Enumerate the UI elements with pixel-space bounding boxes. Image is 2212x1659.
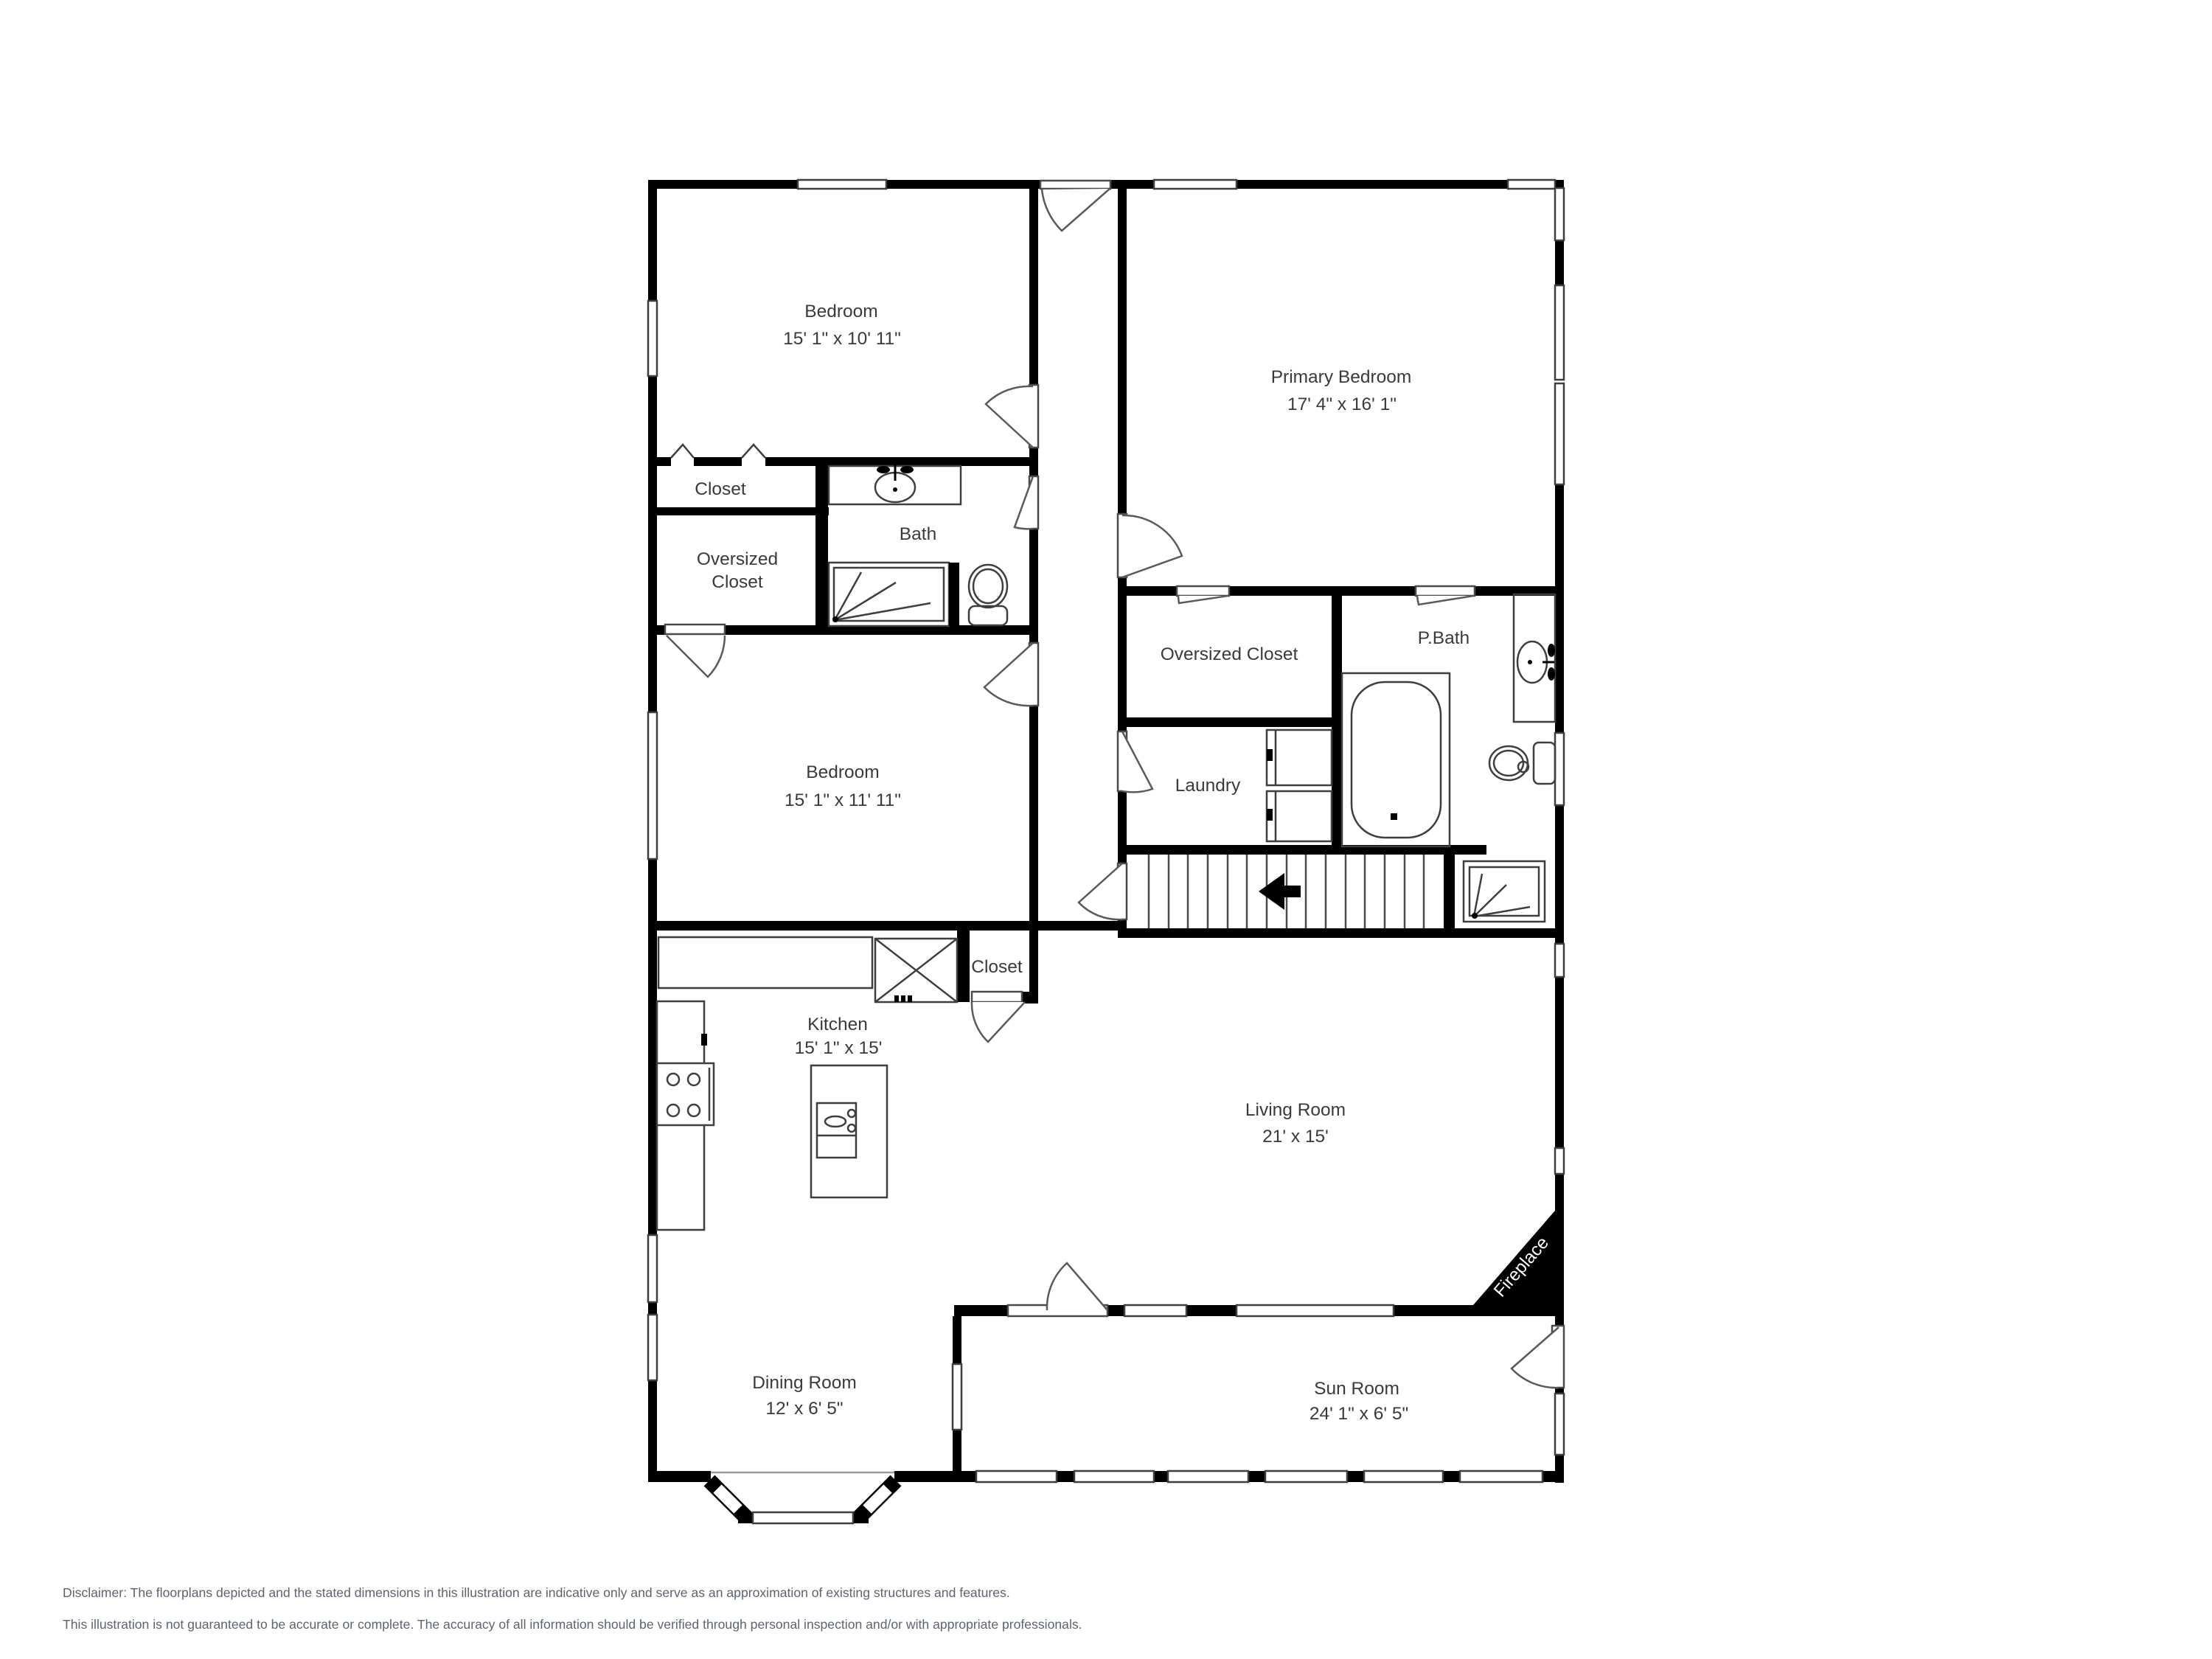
svg-text:P.Bath: P.Bath (1418, 628, 1470, 648)
svg-text:Oversized Closet: Oversized Closet (1161, 644, 1298, 664)
svg-text:This illustration is not guara: This illustration is not guaranteed to b… (63, 1617, 1082, 1632)
svg-text:Disclaimer: The floorplans dep: Disclaimer: The floorplans depicted and … (63, 1585, 1010, 1600)
svg-text:Bath: Bath (900, 524, 936, 544)
svg-text:Primary Bedroom: Primary Bedroom (1271, 367, 1412, 387)
svg-text:12' x 6' 5": 12' x 6' 5" (765, 1399, 843, 1419)
svg-text:15' 1" x 15': 15' 1" x 15' (795, 1038, 883, 1058)
svg-text:Sun Room: Sun Room (1314, 1379, 1399, 1399)
svg-text:Closet: Closet (971, 957, 1023, 977)
svg-text:Bedroom: Bedroom (804, 302, 877, 321)
svg-text:Living Room: Living Room (1245, 1100, 1346, 1120)
svg-text:21' x 15': 21' x 15' (1262, 1127, 1329, 1147)
svg-text:Oversized: Oversized (697, 549, 778, 569)
svg-text:24' 1" x 6' 5": 24' 1" x 6' 5" (1310, 1404, 1408, 1424)
svg-text:Dining Room: Dining Room (752, 1373, 857, 1393)
svg-text:15' 1" x 10' 11": 15' 1" x 10' 11" (783, 329, 901, 349)
svg-text:Laundry: Laundry (1175, 776, 1241, 796)
svg-text:Kitchen: Kitchen (807, 1015, 868, 1034)
svg-text:Bedroom: Bedroom (806, 762, 879, 782)
svg-text:17' 4" x 16' 1": 17' 4" x 16' 1" (1287, 394, 1397, 414)
svg-text:Closet: Closet (712, 572, 763, 592)
svg-text:15' 1" x 11' 11": 15' 1" x 11' 11" (785, 790, 901, 810)
svg-text:Closet: Closet (695, 479, 746, 499)
